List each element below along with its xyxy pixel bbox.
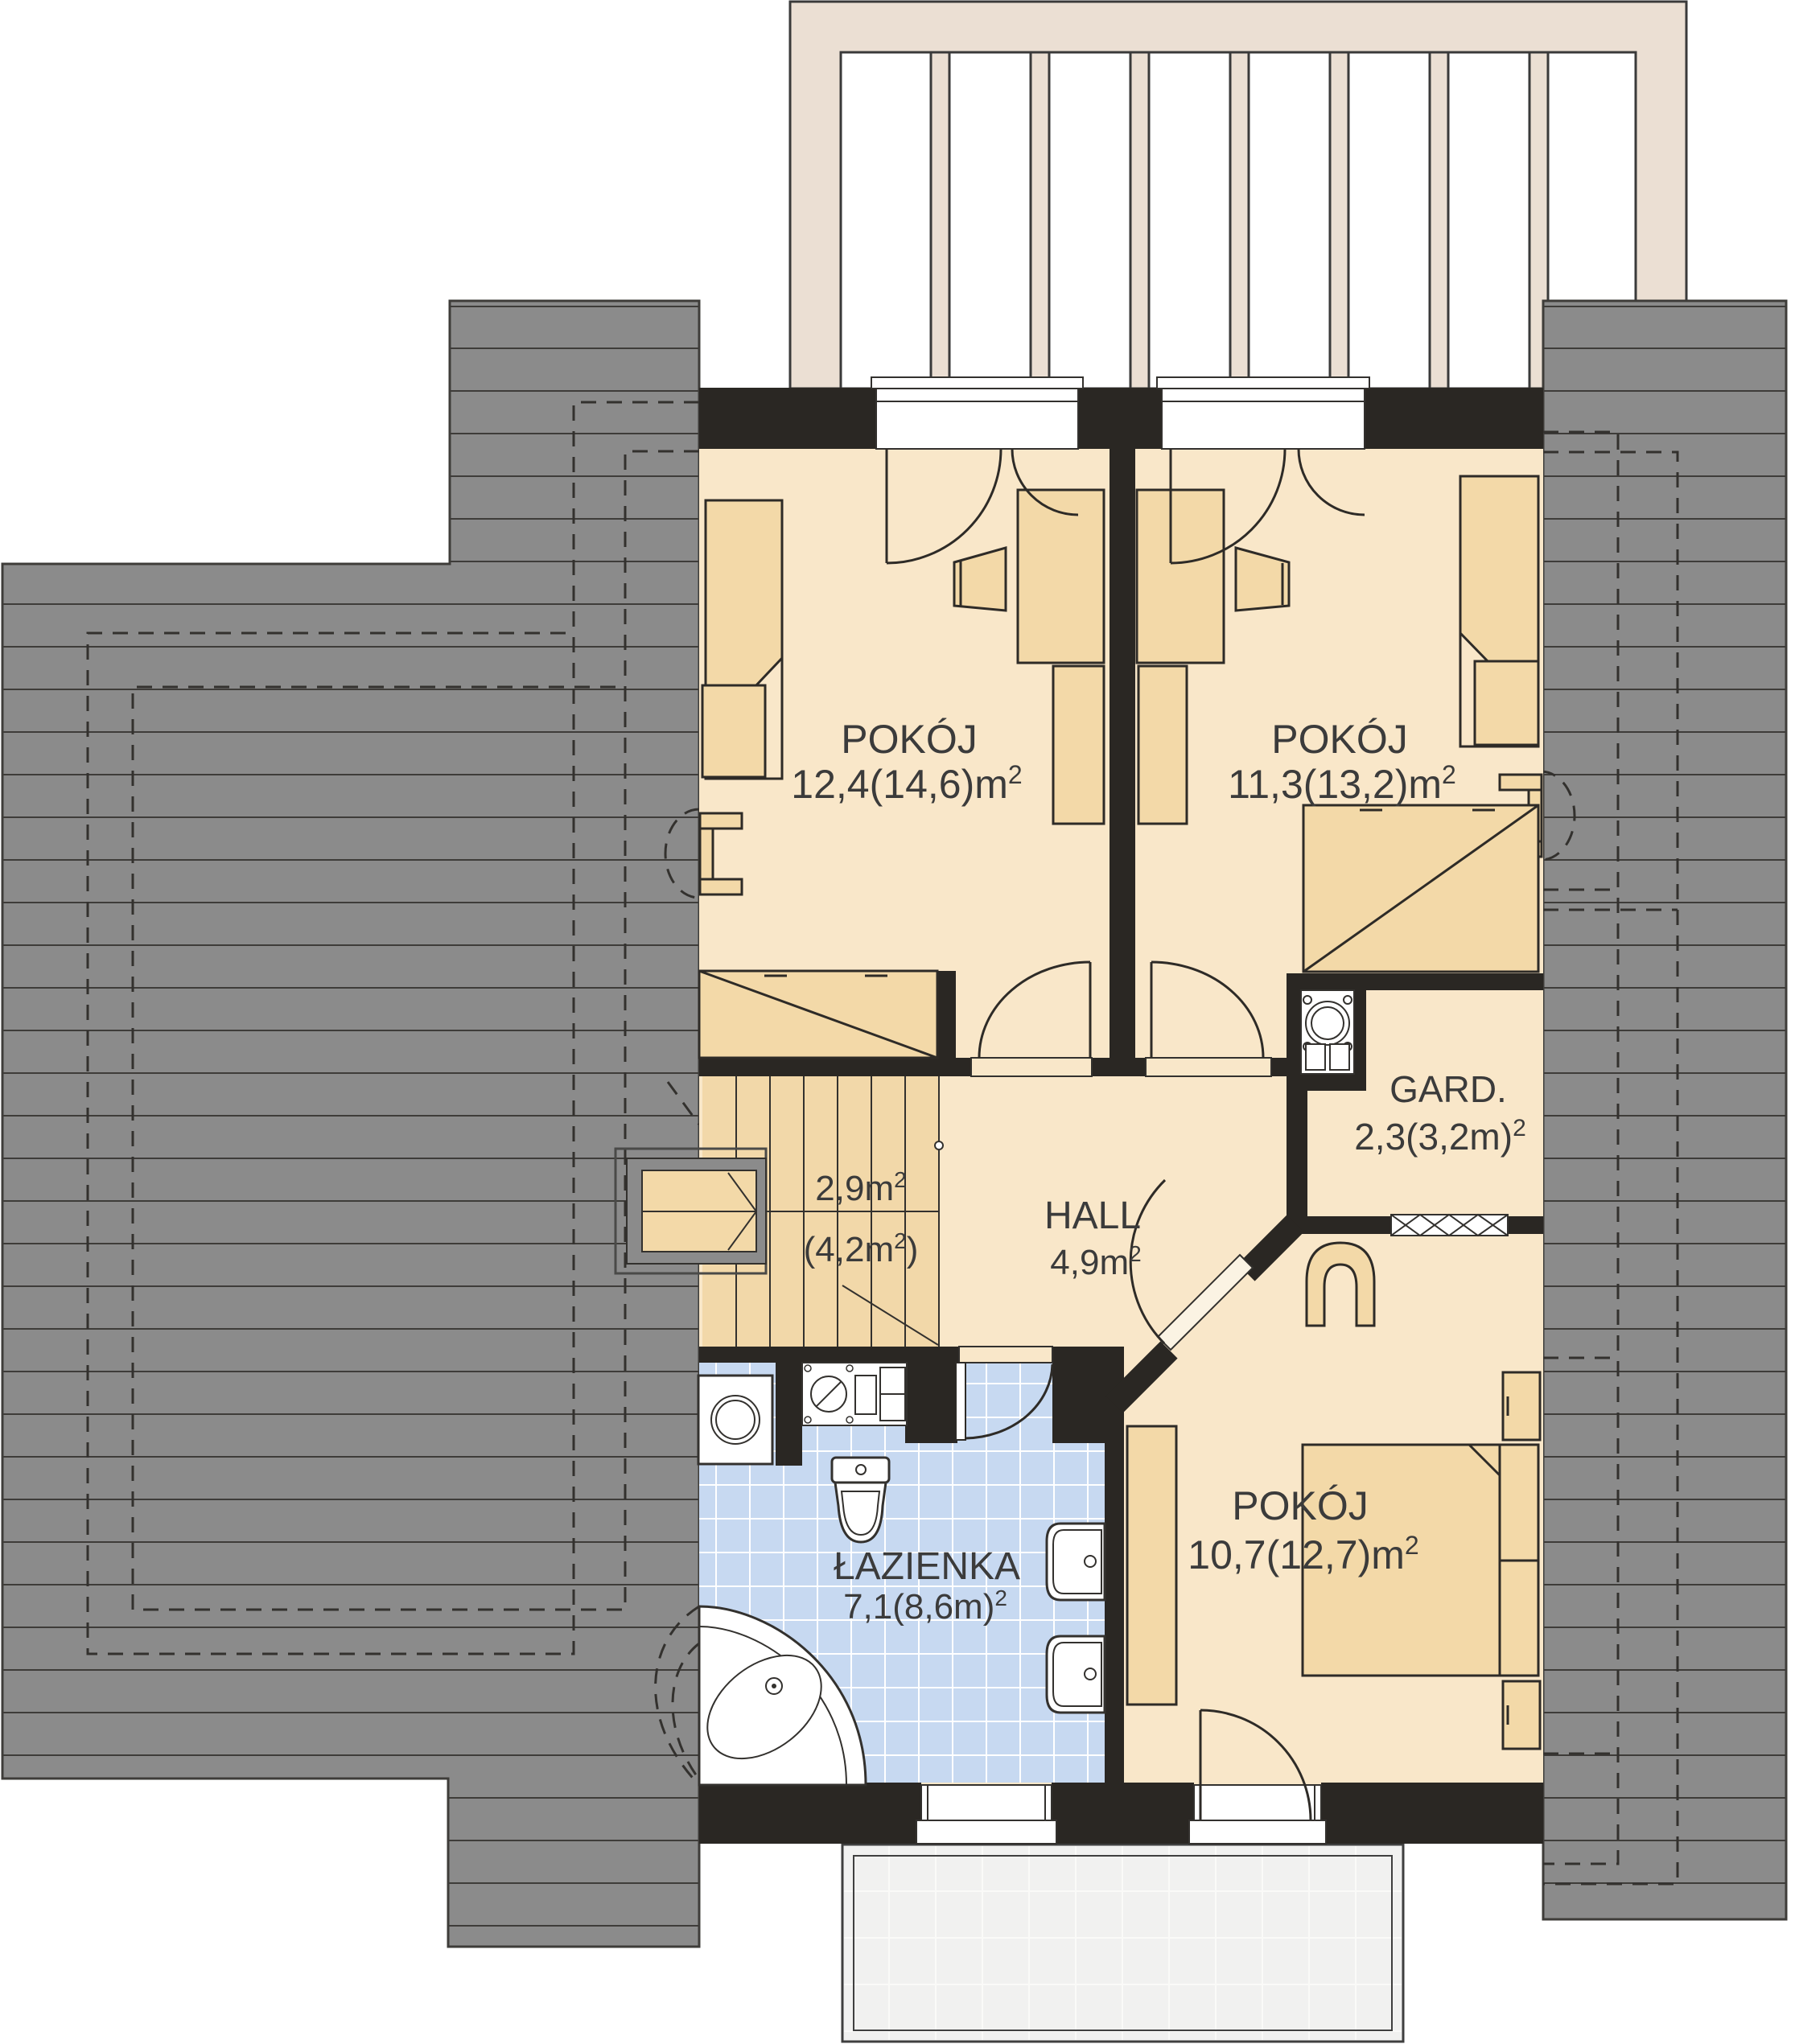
- svg-text:11,3(13,2)m2: 11,3(13,2)m2: [1228, 760, 1456, 807]
- svg-text:GARD.: GARD.: [1389, 1068, 1507, 1110]
- svg-text:7,1(8,6m)2: 7,1(8,6m)2: [843, 1585, 1007, 1627]
- svg-text:2,3(3,2m)2: 2,3(3,2m)2: [1354, 1115, 1526, 1158]
- svg-text:POKÓJ: POKÓJ: [1271, 717, 1407, 762]
- svg-text:4,9m2: 4,9m2: [1050, 1241, 1141, 1282]
- svg-text:12,4(14,6)m2: 12,4(14,6)m2: [791, 760, 1022, 807]
- svg-text:POKÓJ: POKÓJ: [1232, 1483, 1368, 1528]
- svg-text:POKÓJ: POKÓJ: [841, 717, 977, 762]
- svg-text:ŁAZIENKA: ŁAZIENKA: [834, 1545, 1020, 1588]
- svg-text:HALL: HALL: [1044, 1195, 1141, 1237]
- svg-text:2,9m2: 2,9m2: [815, 1167, 906, 1208]
- svg-text:10,7(12,7)m2: 10,7(12,7)m2: [1188, 1531, 1418, 1577]
